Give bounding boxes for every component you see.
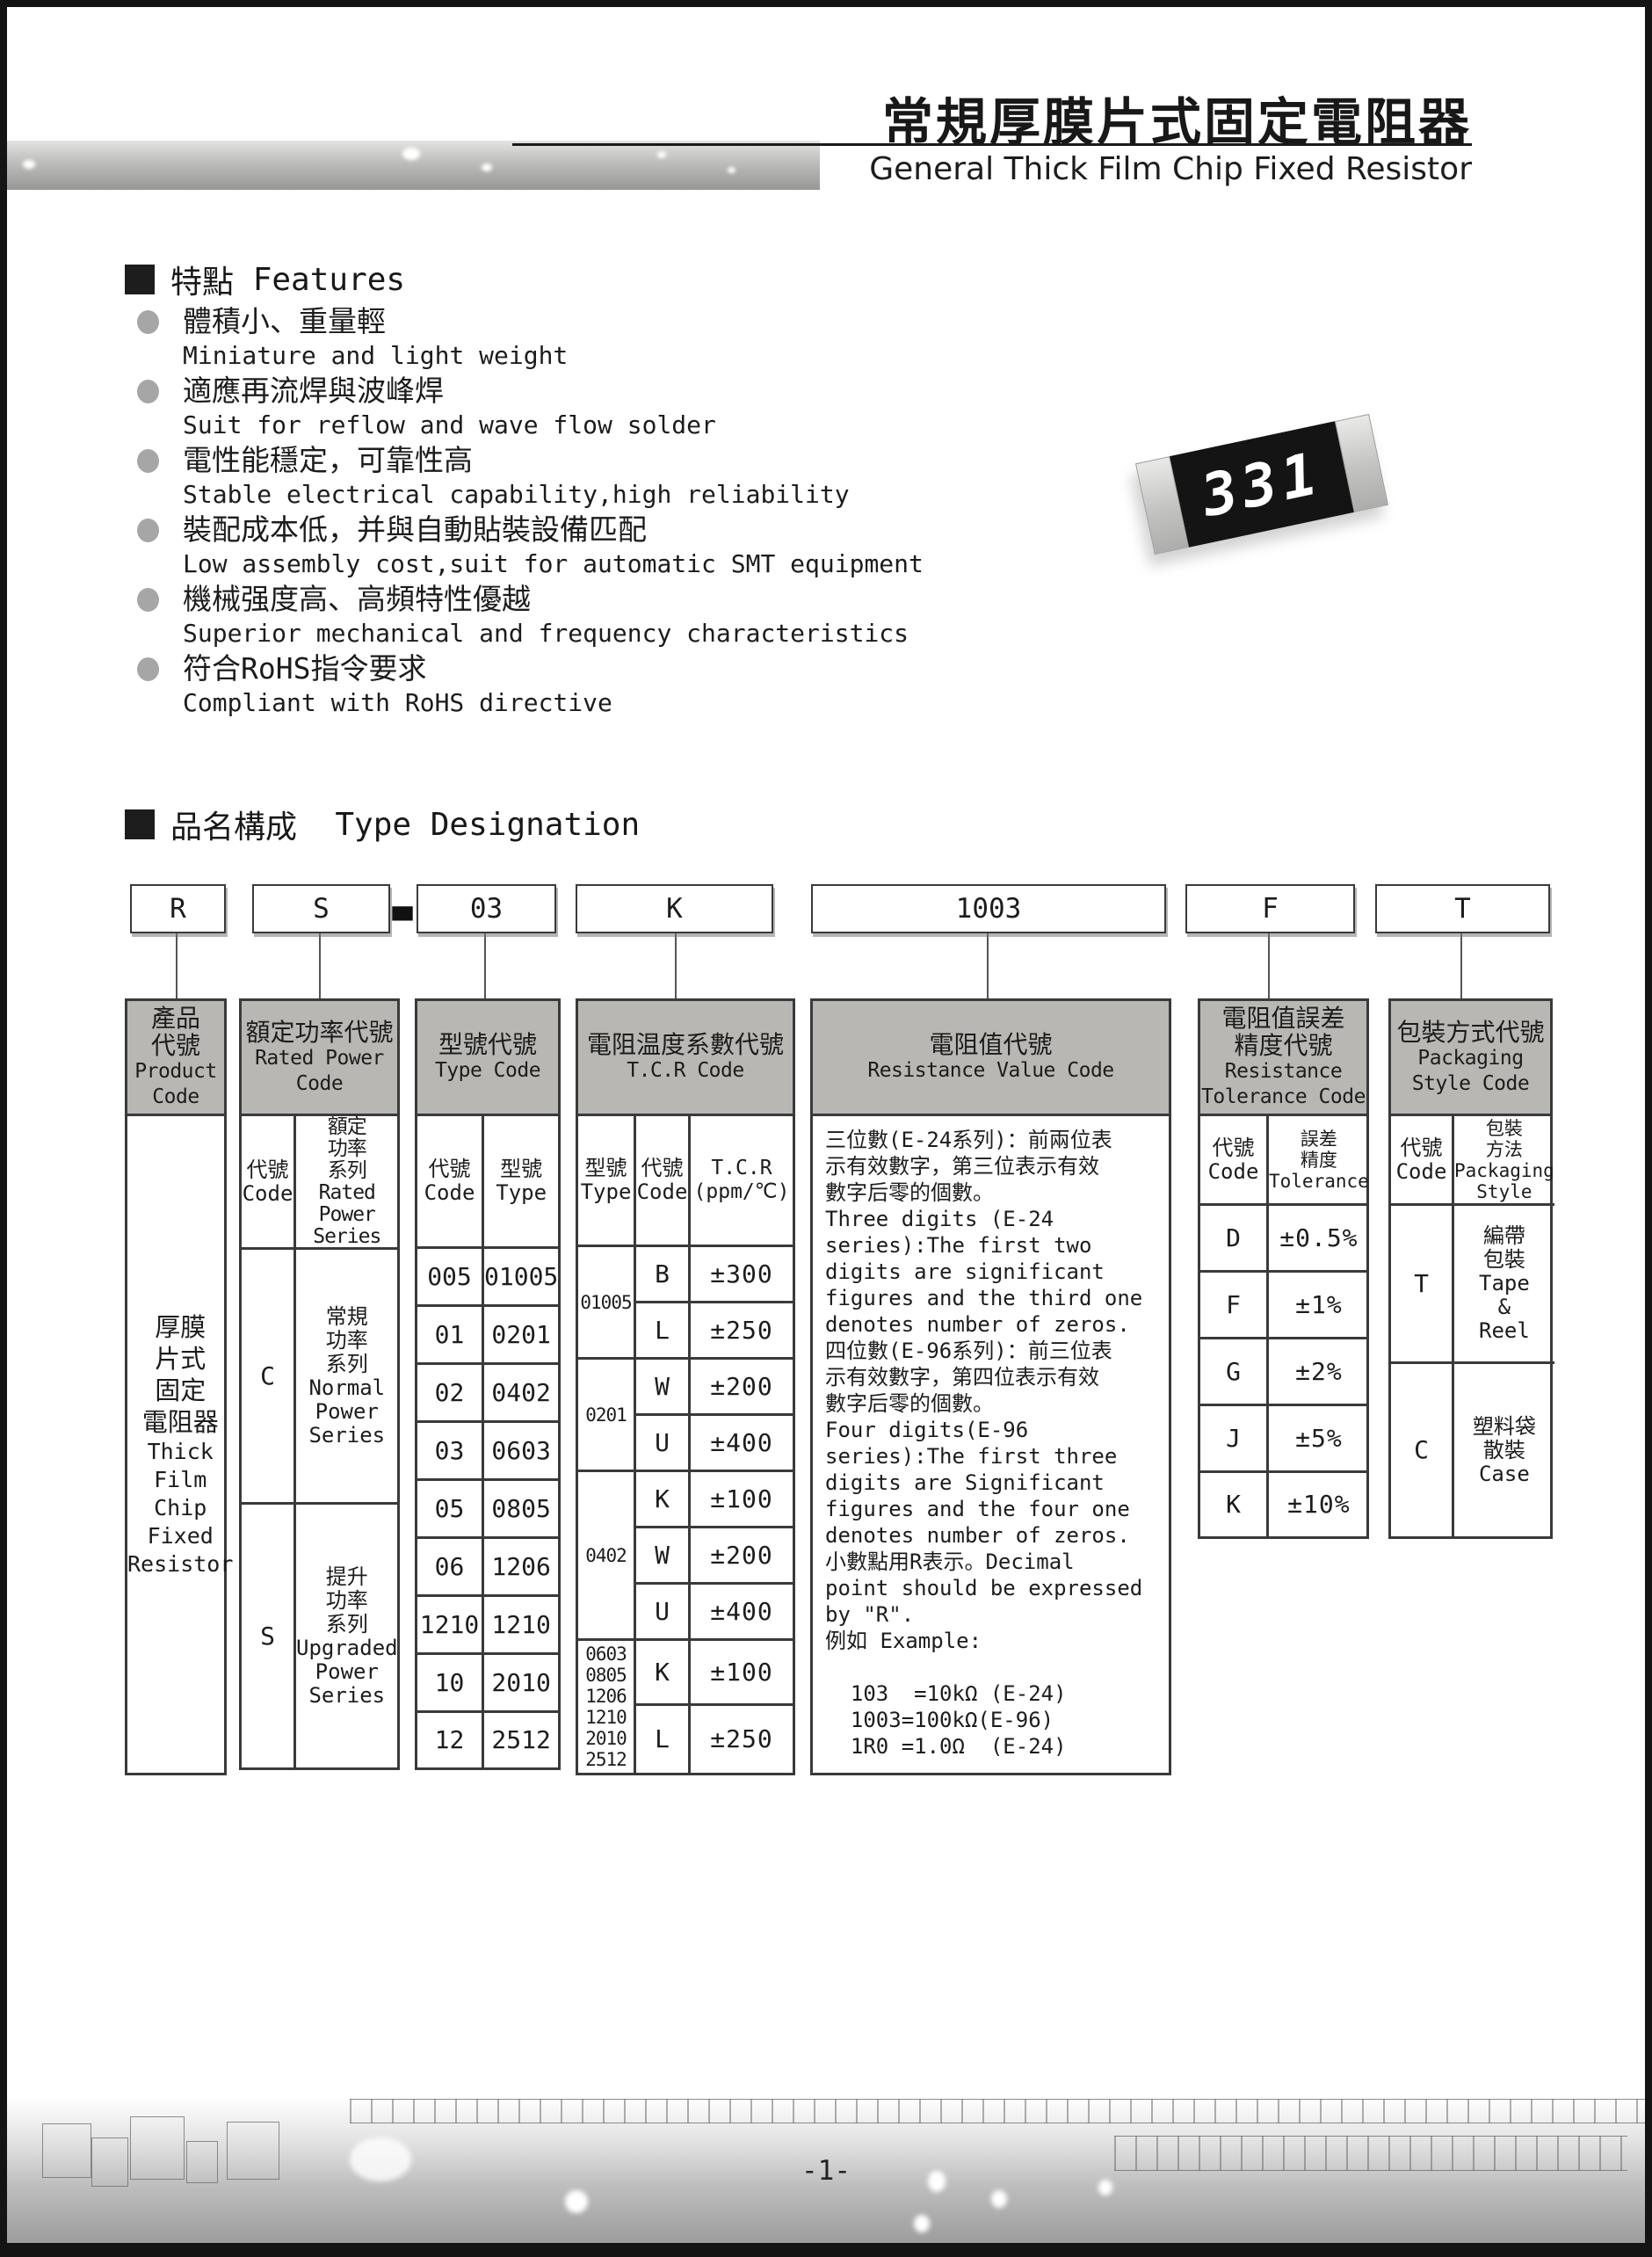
subheader-style: 包裝 方法 Packaging Style	[1454, 1116, 1554, 1206]
code-box-tolerance: F	[1185, 884, 1355, 933]
cell-tolerance-value: ±10%	[1269, 1473, 1369, 1536]
cell-power-code: S	[242, 1505, 296, 1767]
header-en: T.C.R Code	[627, 1058, 743, 1084]
cell-tcr-value: ±250	[691, 1706, 793, 1773]
subheader-type: 型號 Type	[484, 1116, 558, 1249]
cell-tolerance-code: F	[1200, 1273, 1269, 1339]
product-en: Thick Film Chip Fixed Resistor	[127, 1438, 233, 1578]
feature-en: Stable electrical capability,high reliab…	[183, 478, 1134, 511]
datasheet-page: 常規厚膜片式固定電阻器 General Thick Film Chip Fixe…	[0, 0, 1652, 2257]
column-header: 額定功率代號 Rated Power Code	[239, 998, 400, 1116]
decor-sparkle	[482, 163, 492, 171]
cell-type-code: 02	[417, 1365, 484, 1423]
cell-type: 0201	[484, 1307, 558, 1365]
feature-cn: 適應再流焊與波峰焊	[183, 374, 1134, 409]
feature-item: 體積小、重量輕 Miniature and light weight	[132, 304, 1134, 372]
subheader-code: 代號 Code	[242, 1116, 296, 1250]
cell-power-code: C	[242, 1250, 296, 1505]
cell-tcr-code: B	[636, 1247, 691, 1303]
subheader-code: 代號 Code	[636, 1116, 691, 1247]
column-rated-power-code: 額定功率代號 Rated Power Code 代號 Code 額定 功率 系列…	[239, 998, 400, 1770]
bullet-icon	[137, 380, 159, 403]
feature-cn: 體積小、重量輕	[183, 304, 1134, 339]
resistance-value-description: 三位數(E-24系列)：前兩位表 示有效數字，第三位表示有效 數字后零的個數。 …	[813, 1116, 1169, 1773]
subheader-series: 額定 功率 系列 Rated Power Series	[296, 1116, 398, 1250]
decor-glow	[914, 2215, 930, 2232]
cell-packaging-code: C	[1391, 1364, 1454, 1536]
cell-tcr-value: ±100	[691, 1641, 793, 1706]
header-cn: 電阻值代號	[929, 1031, 1052, 1058]
cell-type: 0402	[484, 1365, 558, 1423]
cell-type: 2010	[484, 1655, 558, 1713]
cell-type-code: 005	[417, 1249, 484, 1307]
cell-tcr-type-group: 0402	[578, 1472, 636, 1641]
cell-type: 0805	[484, 1481, 558, 1539]
page-border-left	[0, 0, 7, 2257]
product-body-cell: 厚膜 片式 固定 電阻器 Thick Film Chip Fixed Resis…	[127, 1116, 233, 1773]
column-header: 型號代號 Type Code	[415, 998, 561, 1116]
bullet-icon	[137, 588, 159, 612]
cell-tcr-code: W	[636, 1360, 691, 1416]
cell-tolerance-code: G	[1200, 1339, 1269, 1406]
cell-packaging-style: 塑料袋 散裝 Case	[1454, 1364, 1554, 1536]
header-cn: 額定功率代號	[245, 1019, 393, 1046]
subheader-type: 型號 Type	[578, 1116, 636, 1247]
cell-type: 2512	[484, 1713, 558, 1767]
decor-squares-row	[350, 2099, 1645, 2123]
decor-sparkle	[23, 160, 35, 169]
cell-type: 0603	[484, 1423, 558, 1481]
cell-type-code: 1210	[417, 1597, 484, 1655]
cell-tcr-code: K	[636, 1641, 691, 1706]
decor-glow	[991, 2190, 1007, 2208]
cell-tcr-type-group: 0201	[578, 1360, 636, 1472]
subheader-tcr: T.C.R (ppm/℃)	[691, 1116, 793, 1247]
feature-en: Compliant with RoHS directive	[183, 686, 1134, 719]
cell-type-code: 03	[417, 1423, 484, 1481]
cell-tcr-code: U	[636, 1585, 691, 1641]
column-header: 電阻值代號 Resistance Value Code	[810, 998, 1171, 1116]
cell-tcr-type-group: 01005	[578, 1247, 636, 1360]
column-header: 電阻值誤差 精度代號 Resistance Tolerance Code	[1198, 998, 1369, 1116]
cell-type: 1206	[484, 1539, 558, 1597]
chip-resistor-image: 331	[1142, 397, 1406, 582]
bullet-icon	[137, 519, 159, 542]
page-border-bottom	[0, 2243, 1652, 2257]
connector-line	[1268, 930, 1270, 1000]
connector-line	[987, 930, 989, 1000]
type-designation-heading: 品名構成 Type Designation	[125, 802, 640, 847]
connector-line	[484, 930, 486, 1000]
cell-type-code: 01	[417, 1307, 484, 1365]
column-header: 電阻温度系數代號 T.C.R Code	[576, 998, 795, 1116]
page-border-top	[0, 0, 1652, 7]
header-cn: 產品 代號	[151, 1005, 200, 1059]
cell-tcr-value: ±400	[691, 1585, 793, 1641]
connector-line	[675, 930, 677, 1000]
cell-type: 1210	[484, 1597, 558, 1655]
decor-band-bottom: -1-	[7, 2099, 1645, 2243]
cell-tcr-code: K	[636, 1472, 691, 1528]
feature-cn: 裝配成本低，并與自動貼裝設備匹配	[183, 512, 1134, 548]
cell-tcr-value: ±400	[691, 1416, 793, 1472]
cell-packaging-code: T	[1391, 1206, 1454, 1364]
cell-type: 01005	[484, 1249, 558, 1307]
code-box-product: R	[130, 884, 226, 933]
cell-tcr-code: U	[636, 1416, 691, 1472]
page-number: -1-	[7, 2155, 1645, 2187]
cell-tcr-value: ±250	[691, 1303, 793, 1360]
feature-item: 電性能穩定，可靠性高 Stable electrical capability,…	[132, 443, 1134, 511]
subheader-code: 代號 Code	[1391, 1116, 1454, 1206]
cell-type-code: 10	[417, 1655, 484, 1713]
features-heading-en: Features	[253, 262, 405, 298]
header-en: Packaging Style Code	[1412, 1046, 1529, 1097]
type-designation-heading-en: Type Designation	[335, 807, 640, 843]
header-cn: 電阻温度系數代號	[587, 1031, 784, 1058]
feature-cn: 電性能穩定，可靠性高	[183, 443, 1134, 478]
code-box-resistance: 1003	[811, 884, 1166, 933]
cell-tcr-code: W	[636, 1528, 691, 1585]
feature-en: Miniature and light weight	[183, 339, 1134, 372]
features-list: 體積小、重量輕 Miniature and light weight 適應再流焊…	[132, 304, 1134, 721]
header-en: Rated Power Code	[255, 1046, 384, 1097]
cell-packaging-style: 編帶 包裝 Tape & Reel	[1454, 1206, 1554, 1364]
column-resistance-value-code: 電阻值代號 Resistance Value Code 三位數(E-24系列)：…	[810, 998, 1171, 1775]
feature-item: 符合RoHS指令要求 Compliant with RoHS directive	[132, 651, 1134, 719]
subheader-tolerance: 誤差 精度 Tolerance	[1269, 1116, 1369, 1206]
cell-tcr-code: L	[636, 1303, 691, 1360]
column-tcr-code: 電阻温度系數代號 T.C.R Code 型號 Type 代號 Code T.C.…	[576, 998, 795, 1775]
column-header: 產品 代號 Product Code	[125, 998, 227, 1116]
connector-line	[319, 930, 321, 1000]
header-en: Type Code	[435, 1058, 540, 1084]
cell-tcr-value: ±300	[691, 1247, 793, 1303]
cell-tolerance-code: K	[1200, 1473, 1269, 1536]
features-heading: 特點 Features	[125, 257, 405, 302]
header-cn: 型號代號	[438, 1031, 537, 1058]
decor-sparkle	[402, 148, 420, 160]
feature-cn: 機械强度高、高頻特性優越	[183, 582, 1134, 617]
header-en: Resistance Value Code	[867, 1058, 1113, 1084]
cell-power-series: 提升 功率 系列 Upgraded Power Series	[296, 1505, 398, 1767]
page-subtitle: General Thick Film Chip Fixed Resistor	[869, 151, 1472, 187]
subheader-code: 代號 Code	[417, 1116, 484, 1249]
column-packaging-code: 包裝方式代號 Packaging Style Code 代號 Code 包裝 方…	[1388, 998, 1553, 1539]
header-cn: 電阻值誤差 精度代號	[1221, 1005, 1344, 1059]
cell-tolerance-value: ±2%	[1269, 1339, 1369, 1406]
code-box-type: 03	[417, 884, 556, 933]
feature-item: 裝配成本低，并與自動貼裝設備匹配 Low assembly cost,suit …	[132, 512, 1134, 580]
bullet-icon	[137, 310, 159, 334]
spacer	[297, 807, 335, 843]
column-product-code: 產品 代號 Product Code 厚膜 片式 固定 電阻器 Thick Fi…	[125, 998, 227, 1775]
connector-line	[1460, 930, 1462, 1000]
cell-tolerance-value: ±5%	[1269, 1406, 1369, 1473]
decor-sparkle	[728, 167, 735, 173]
code-box-tcr: K	[576, 884, 773, 933]
decor-glow	[565, 2190, 588, 2213]
column-header: 包裝方式代號 Packaging Style Code	[1388, 998, 1553, 1116]
cell-tolerance-value: ±1%	[1269, 1273, 1369, 1339]
column-tolerance-code: 電阻值誤差 精度代號 Resistance Tolerance Code 代號 …	[1198, 998, 1369, 1539]
cell-tcr-value: ±200	[691, 1528, 793, 1585]
header-en: Product Code	[134, 1059, 216, 1110]
code-box-power: S	[252, 884, 390, 933]
cell-tcr-code: L	[636, 1706, 691, 1773]
cell-tcr-value: ±100	[691, 1472, 793, 1528]
bullet-icon	[137, 657, 159, 681]
cell-type-code: 12	[417, 1713, 484, 1767]
cell-tolerance-code: D	[1200, 1206, 1269, 1273]
title-underline	[512, 143, 1472, 146]
section-square-icon	[125, 265, 155, 294]
code-dash-separator: -	[385, 865, 420, 949]
cell-tolerance-value: ±0.5%	[1269, 1206, 1369, 1273]
feature-en: Low assembly cost,suit for automatic SMT…	[183, 548, 1134, 580]
decor-band-top	[7, 141, 820, 190]
chip-marking: 331	[1170, 421, 1354, 548]
product-cn: 厚膜 片式 固定 電阻器	[142, 1311, 219, 1438]
section-square-icon	[125, 809, 155, 839]
cell-tolerance-code: J	[1200, 1406, 1269, 1473]
header-cn: 包裝方式代號	[1396, 1019, 1544, 1046]
page-border-right	[1645, 0, 1652, 2257]
bullet-icon	[137, 449, 159, 473]
feature-en: Superior mechanical and frequency charac…	[183, 617, 1134, 650]
decor-sparkle	[657, 151, 666, 158]
features-heading-cn: 特點	[170, 257, 234, 302]
feature-cn: 符合RoHS指令要求	[183, 651, 1134, 686]
cell-tcr-type-group: 0603 0805 1206 1210 2010 2512	[578, 1641, 636, 1773]
type-designation-heading-cn: 品名構成	[170, 802, 297, 847]
feature-item: 適應再流焊與波峰焊 Suit for reflow and wave flow …	[132, 374, 1134, 441]
chip-body: 331	[1135, 414, 1388, 555]
subheader-code: 代號 Code	[1200, 1116, 1269, 1206]
spacer	[234, 262, 253, 298]
cell-tcr-value: ±200	[691, 1360, 793, 1416]
feature-item: 機械强度高、高頻特性優越 Superior mechanical and fre…	[132, 582, 1134, 650]
feature-en: Suit for reflow and wave flow solder	[183, 409, 1134, 441]
cell-power-series: 常規 功率 系列 Normal Power Series	[296, 1250, 398, 1505]
column-type-code: 型號代號 Type Code 代號 Code 型號 Type 005 01005…	[415, 998, 561, 1770]
header-en: Resistance Tolerance Code	[1201, 1059, 1366, 1110]
code-box-packaging: T	[1375, 884, 1550, 933]
cell-type-code: 06	[417, 1539, 484, 1597]
cell-type-code: 05	[417, 1481, 484, 1539]
connector-line	[176, 930, 178, 1000]
